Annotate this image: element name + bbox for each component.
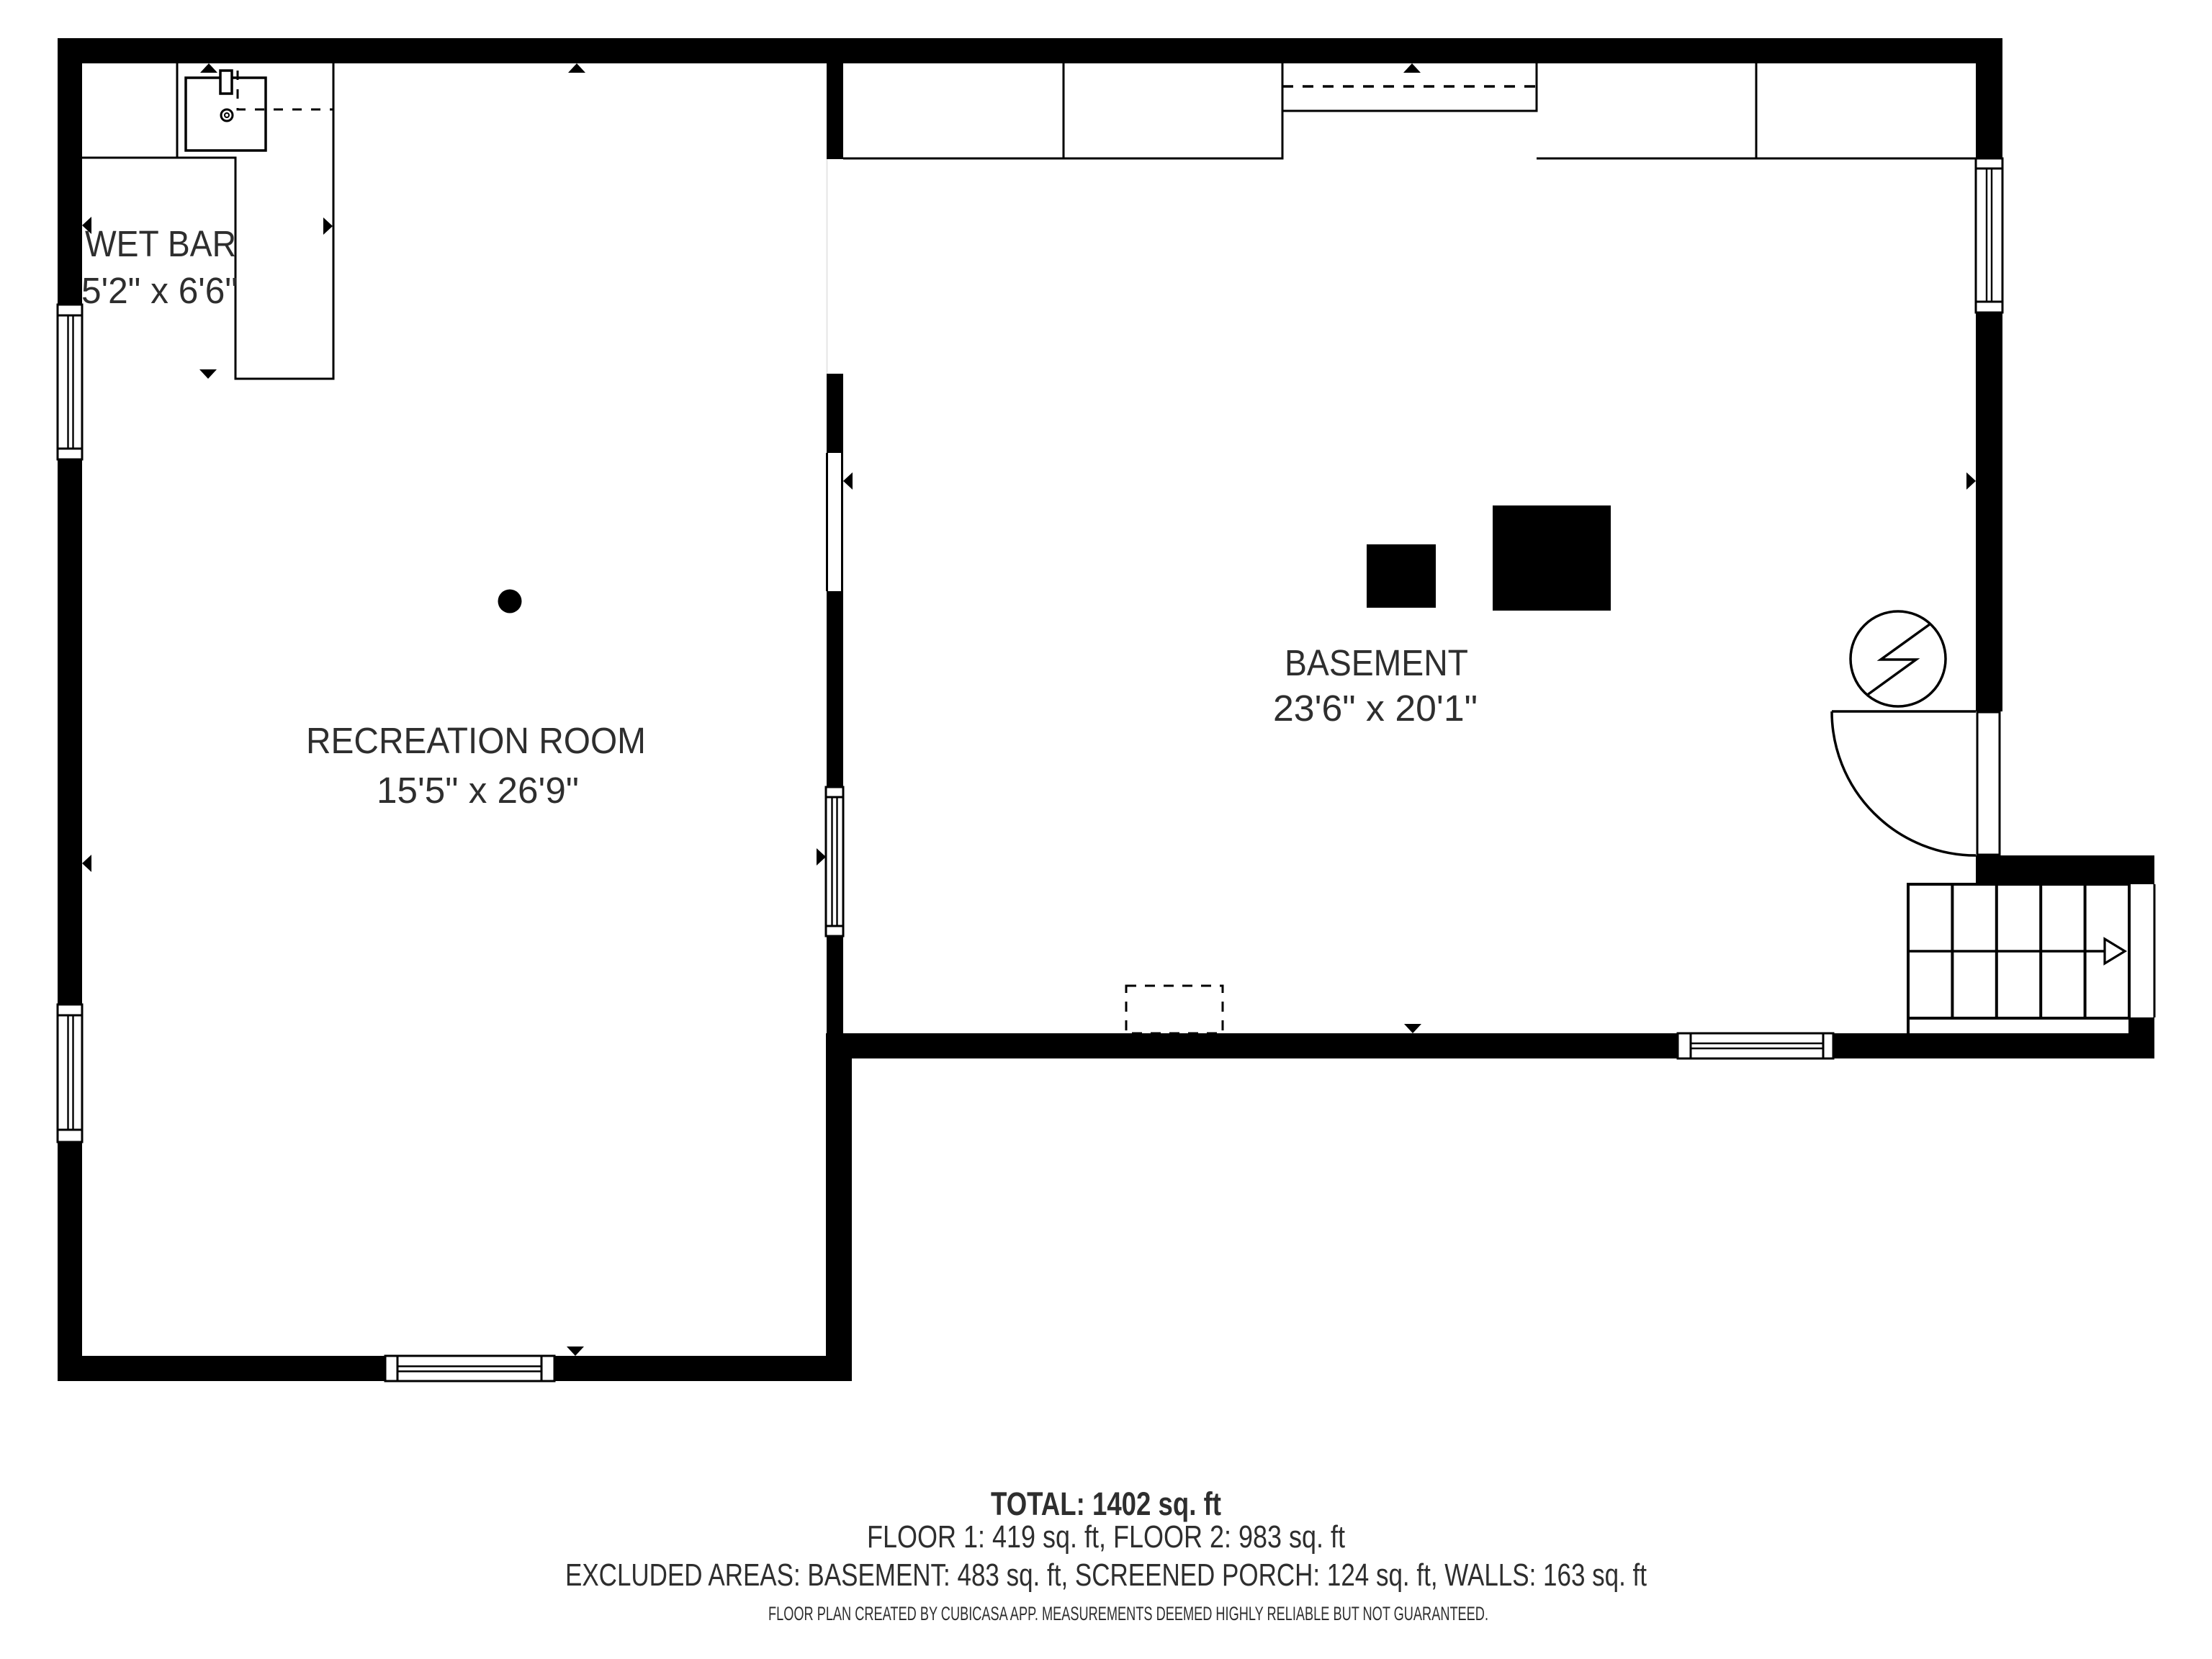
svg-text:WET BAR: WET BAR <box>85 223 236 264</box>
svg-text:5'2" x 6'6": 5'2" x 6'6" <box>81 270 238 311</box>
svg-text:BASEMENT: BASEMENT <box>1285 642 1468 683</box>
svg-text:15'5" x 26'9": 15'5" x 26'9" <box>377 770 579 811</box>
svg-text:RECREATION ROOM: RECREATION ROOM <box>306 720 646 761</box>
svg-text:23'6" x 20'1": 23'6" x 20'1" <box>1273 688 1478 729</box>
svg-text:FLOOR PLAN CREATED BY CUBICASA: FLOOR PLAN CREATED BY CUBICASA APP. MEAS… <box>768 1603 1488 1624</box>
svg-text:FLOOR 1: 419 sq. ft, FLOOR 2:: FLOOR 1: 419 sq. ft, FLOOR 2: 983 sq. ft <box>867 1519 1345 1555</box>
svg-text:TOTAL: 1402 sq. ft: TOTAL: 1402 sq. ft <box>991 1485 1221 1522</box>
svg-text:EXCLUDED AREAS: BASEMENT: 483: EXCLUDED AREAS: BASEMENT: 483 sq. ft, SC… <box>565 1557 1647 1593</box>
